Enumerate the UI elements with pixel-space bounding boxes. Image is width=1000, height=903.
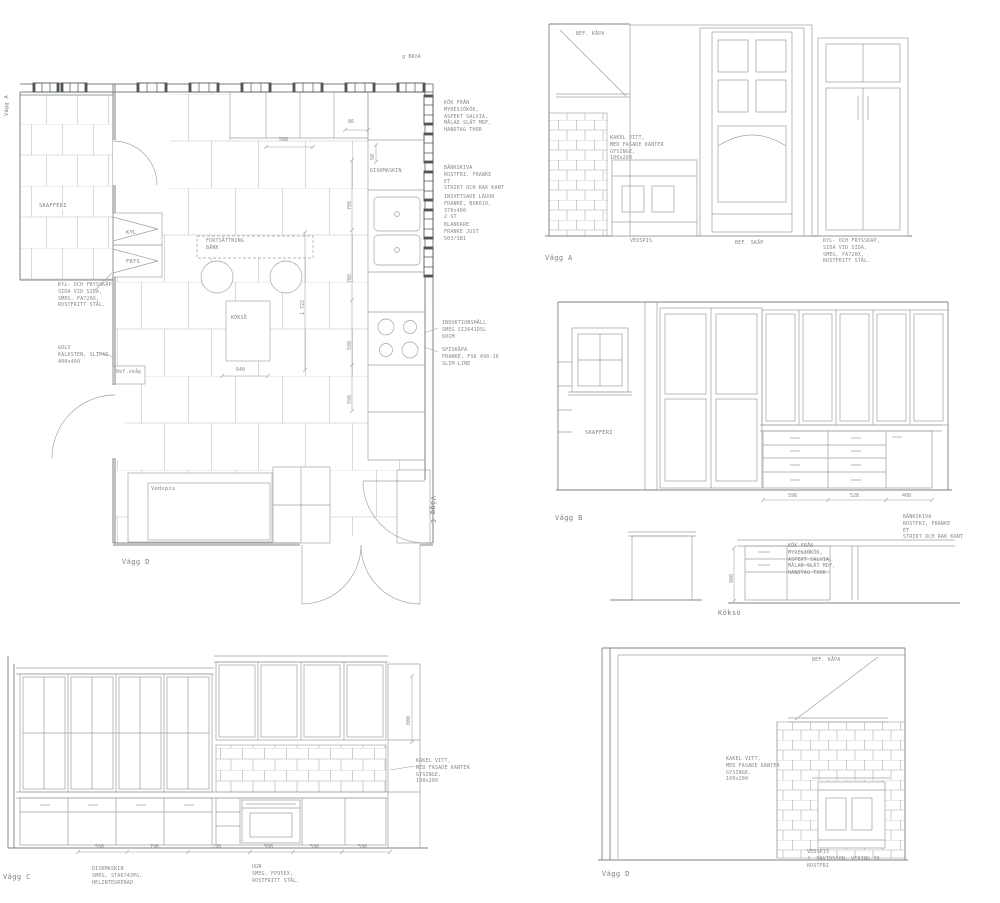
vagg-c-dim-5: 598: [310, 844, 319, 850]
vagg-a-kyl-frys: KYL- OCH FRYSSKAP, SIDA VID SIDA, SMEG, …: [823, 238, 880, 265]
elevation-vagg-d: [598, 648, 908, 860]
vagg-c-ugn: UGN SMEG, FP95EX, ROSTFRITT STÅL,: [252, 864, 299, 884]
vagg-c-dim-800: 800: [406, 716, 412, 725]
plan-wall-right-label: Vägg C: [429, 496, 437, 524]
drawing-sheet: Vägg A g BRöA SKAFFERI KYL FRYS FORTSÄTT…: [0, 0, 1000, 903]
dim-598-top: 598: [279, 137, 288, 143]
plan-frys-label: FRYS: [126, 259, 140, 266]
note-spiskapa: SPISKÅPA FRANKE, FSK 490-16 SLIM-LINE: [442, 347, 499, 367]
vagg-a-title: Vägg A: [545, 254, 573, 262]
vagg-c-dim-6: 598: [358, 844, 367, 850]
dim-598-c: 598: [347, 341, 353, 350]
note-lador: INSVETSADE LÅDOR FRANKE, BXK610, 370x400…: [444, 194, 495, 221]
elevation-koks-o: [610, 532, 960, 603]
vagg-d-title: Vägg D: [602, 870, 630, 878]
dim-640: 640: [236, 367, 245, 373]
note-kyl-frys: KYL- OCH FRYSSKÅP, SIDA VID SIDA, SMEG, …: [58, 282, 115, 309]
plan-vedspis-label: Vedspis: [150, 486, 176, 493]
vagg-a-kakel: KAKEL VITT, MED FASADE KANTER GYSINGE, 1…: [610, 135, 664, 162]
koks-o-bankskiva: BÄNKSKIVA ROSTFRI, FRANKE ET STRIKT OCH …: [903, 514, 963, 541]
plan-diskmaskin-label: DISKMASKIN: [370, 168, 402, 175]
note-blandare: BLANDARE FRANKE JUST 503/SB1: [444, 222, 479, 242]
plan-bench-label: FORTSÄTTNING BÄNK: [206, 238, 244, 252]
plan-wall-a-label: Vägg A: [4, 95, 11, 116]
vagg-a-bef-kapa: BEF. KÅPA: [576, 31, 604, 38]
vagg-a-vedspis: VEDSPIS: [630, 238, 652, 245]
vagg-c-dim-1: 598: [95, 844, 104, 850]
vagg-c-dim-3: 798: [212, 844, 221, 850]
elevation-vagg-c: [8, 656, 428, 854]
vagg-c-dim-2: 798: [150, 844, 159, 850]
vagg-b-title: Vägg B: [555, 514, 583, 522]
dim-86: 86: [348, 119, 354, 125]
dim-708-a: 708: [347, 201, 353, 210]
plan-bef-skap-label: Bef.skåp: [116, 369, 141, 376]
note-kok: KÖK FRÅN MYRESJÖKÖK, ASPEKT SALVIA, MÅLA…: [444, 100, 491, 134]
koks-o-title: Köksö: [718, 609, 741, 617]
vagg-d-vedspis: VEDSPIS J. DAVIDSSON, VIKING 30 ROSTFRI: [807, 849, 880, 869]
vagg-b-skafferi: SKAFFERI: [585, 430, 613, 437]
note-bankskiva: BÄNKSKIVA ROSTFRI, FRANKE ET STRIKT OCH …: [444, 165, 504, 192]
plan-floor: [20, 92, 430, 548]
vagg-d-kakel: KAKEL VITT, MED FASADE KANTER GYSINGE, 1…: [726, 756, 780, 783]
vagg-c-kakel: KAKEL VITT, MED FASADE KANTER GYSINGE, 1…: [416, 758, 470, 785]
vagg-d-bef-kapa: BEF. KÅPA: [812, 657, 840, 664]
dim-50: 50: [370, 154, 376, 160]
vagg-b-dim-3: 408: [902, 493, 911, 499]
plan-skafferi-label: SKAFFERI: [38, 203, 68, 210]
vagg-a-bef-skap: BEF. SKÅP: [735, 240, 763, 247]
dim-1722: 1 722: [300, 300, 306, 315]
plan-wall-bottom-label: Vägg D: [122, 558, 150, 566]
elevation-vagg-a: [545, 24, 912, 236]
vagg-b-dim-2: 528: [850, 493, 859, 499]
vagg-c-diskmaskin: DISKMASKIN SMEG, STA6743PG, HELINTEGRERA…: [92, 866, 143, 886]
vagg-b-dim-1: 598: [788, 493, 797, 499]
dim-708-b: 708: [347, 274, 353, 283]
cad-linework: [0, 0, 1000, 903]
elevation-vagg-b: [556, 302, 952, 502]
note-golv: GOLV KALKSTEN, SLIPAD 400x400: [58, 345, 109, 365]
vagg-c-dim-4: 598: [264, 844, 273, 850]
dim-598-d: 598: [347, 395, 353, 404]
koks-o-dim-900: 900: [729, 574, 735, 583]
plan-corner-note: g BRöA: [402, 54, 421, 61]
plan-island-label: KÖKSÖ: [231, 315, 247, 322]
note-induktion: INDUKTIONSHÄLL SMEG SI2641DSL 60CM: [442, 320, 486, 340]
plan-kyl-label: KYL: [126, 230, 136, 237]
vagg-c-title: Vägg C: [3, 873, 31, 881]
koks-o-kok: KÖK FRÅN MYRESJÖKÖK, ASPEKT SALVIA, MÅLA…: [788, 543, 835, 577]
